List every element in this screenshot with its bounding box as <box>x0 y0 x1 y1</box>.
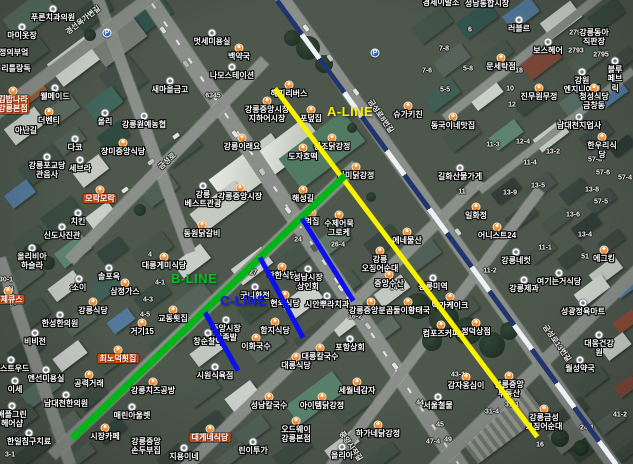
c-line-segment <box>300 217 355 302</box>
dashed-route-line <box>275 0 618 464</box>
c-line-label: C-LINE <box>220 293 266 308</box>
b-line-label: B-LINE <box>171 271 217 286</box>
satellite-map[interactable]: 27972793279563457-87-65-85-5618101211-31… <box>0 0 633 464</box>
b-line <box>70 172 348 440</box>
a-line <box>273 86 539 437</box>
a-line-label: A-LINE <box>327 104 373 119</box>
c-line-segment <box>203 311 240 371</box>
map-lines-layer: A-LINE B-LINE C-LINE <box>0 0 633 464</box>
